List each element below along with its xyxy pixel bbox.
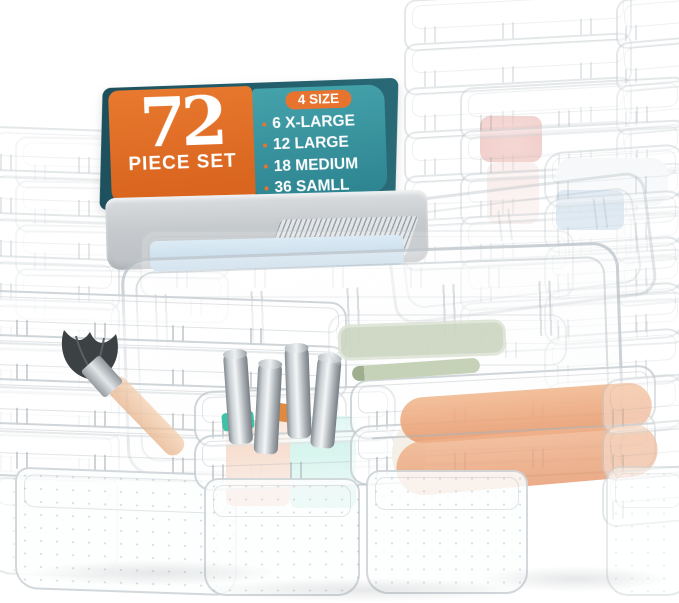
lipstick-tube [284, 344, 311, 439]
size-item-label: 6 X-LARGE [272, 110, 355, 134]
banner-sizes-panel: 4 SIZE 6 X-LARGE 12 LARGE 18 MEDIUM 36 S… [252, 84, 388, 197]
size-count-badge: 4 SIZE [286, 89, 352, 109]
piece-count: 72 [108, 87, 254, 158]
bullet-dot-icon [262, 122, 266, 126]
product-photo: 72 PIECE SET 4 SIZE 6 X-LARGE 12 LARGE 1… [0, 0, 679, 603]
sage-palette [337, 319, 506, 361]
bullet-dot-icon [264, 165, 268, 169]
piece-count-label: PIECE SET [110, 150, 255, 177]
bullet-dot-icon [263, 143, 267, 147]
floor-shadow [480, 566, 670, 592]
banner-count-panel: 72 PIECE SET [108, 86, 256, 205]
piece-count-banner: 72 PIECE SET 4 SIZE 6 X-LARGE 12 LARGE 1… [108, 81, 392, 209]
bullet-dot-icon [264, 186, 268, 190]
size-item-label: 18 MEDIUM [273, 153, 358, 177]
lipstick-tube [254, 359, 283, 454]
size-item-label: 12 LARGE [273, 132, 350, 156]
size-list: 6 X-LARGE 12 LARGE 18 MEDIUM 36 SAMLL [253, 109, 388, 199]
